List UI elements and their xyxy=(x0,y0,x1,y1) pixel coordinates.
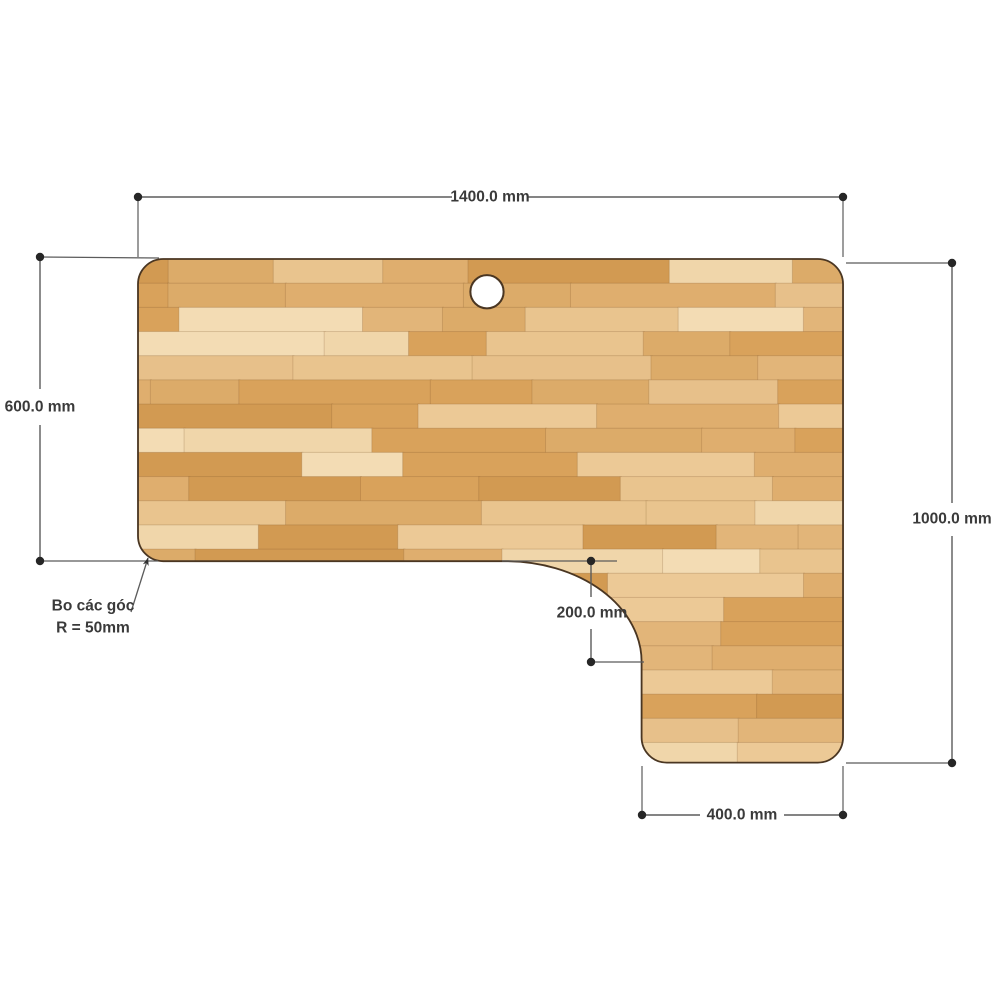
wood-plank xyxy=(795,428,976,453)
wood-plank xyxy=(716,525,799,550)
dimension-top-width: 1400.0 mm xyxy=(134,189,847,258)
wood-plank xyxy=(738,718,934,743)
dim-endpoint-dot xyxy=(948,759,956,767)
wood-plank xyxy=(329,597,534,622)
wood-plank xyxy=(651,356,759,381)
wood-plank xyxy=(532,380,650,405)
wood-plank xyxy=(760,549,966,574)
wood-plank xyxy=(730,332,940,357)
wood-plank xyxy=(363,742,501,767)
wood-plank xyxy=(400,718,538,743)
wood-plank xyxy=(286,501,483,526)
wood-plank xyxy=(643,332,730,357)
wood-plank xyxy=(277,622,407,647)
dimension-left-height: 600.0 mm xyxy=(5,253,159,565)
wood-plank xyxy=(418,404,597,429)
wood-plank xyxy=(430,380,533,405)
wood-plank xyxy=(274,670,376,695)
wood-plank xyxy=(150,380,239,405)
wood-plank xyxy=(332,404,419,429)
wood-plank xyxy=(308,573,507,598)
wood-plank xyxy=(583,525,717,550)
wood-plank xyxy=(168,283,286,308)
wood-plank xyxy=(129,404,332,429)
wood-plank xyxy=(442,307,526,332)
dim-endpoint-dot xyxy=(587,658,595,666)
wood-plank xyxy=(803,307,955,332)
dim-top-width-label: 1400.0 mm xyxy=(450,189,529,206)
wood-plank xyxy=(112,525,259,550)
wood-plank xyxy=(401,694,598,719)
wood-plank xyxy=(406,622,622,647)
dim-endpoint-dot xyxy=(839,811,847,819)
dimension-right-height: 1000.0 mm xyxy=(846,259,992,767)
dim-endpoint-dot xyxy=(587,557,595,565)
wood-plank xyxy=(525,307,679,332)
dim-endpoint-dot xyxy=(839,193,847,201)
dim-bottom-width-label: 400.0 mm xyxy=(707,807,778,824)
wood-plank xyxy=(546,428,703,453)
wood-plank xyxy=(137,597,329,622)
wood-plank xyxy=(778,380,858,405)
wood-plank xyxy=(285,283,464,308)
wood-plank xyxy=(0,283,169,308)
dim-right-height-label: 1000.0 mm xyxy=(912,511,991,528)
wood-plank xyxy=(649,380,779,405)
wood-plank xyxy=(754,452,912,477)
wood-plank xyxy=(804,573,970,598)
wood-plank xyxy=(129,356,294,381)
wood-plank xyxy=(179,307,364,332)
wood-plank xyxy=(409,332,488,357)
wood-plank xyxy=(258,525,398,550)
dim-endpoint-dot xyxy=(36,253,44,261)
wood-plank xyxy=(319,718,401,743)
wood-plank xyxy=(772,670,922,695)
wood-plank xyxy=(39,307,180,332)
wood-plank xyxy=(479,477,622,502)
wood-plank xyxy=(375,670,564,695)
wood-plank xyxy=(663,549,761,574)
wood-plank xyxy=(230,646,435,671)
extension-line xyxy=(40,257,159,258)
wood-plank xyxy=(168,259,274,284)
wood-plank xyxy=(372,428,547,453)
wood-plank xyxy=(607,573,804,598)
dim-endpoint-dot xyxy=(36,557,44,565)
wood-plank xyxy=(597,404,780,429)
wood-plank xyxy=(293,356,473,381)
wood-plank xyxy=(755,501,918,526)
wood-texture xyxy=(0,259,976,767)
wood-plank xyxy=(18,428,185,453)
wood-plank xyxy=(724,597,870,622)
wood-plank xyxy=(124,332,325,357)
wood-plank xyxy=(798,525,959,550)
corner-note-line1: Bo các góc xyxy=(52,598,135,615)
wood-plank xyxy=(16,646,141,671)
wood-plank xyxy=(486,332,644,357)
drawing-canvas: 1400.0 mm 600.0 mm 1000.0 mm xyxy=(0,0,1000,1000)
wood-plank xyxy=(273,259,383,284)
wood-plank xyxy=(363,307,444,332)
dim-left-height-label: 600.0 mm xyxy=(5,399,76,416)
wood-plank xyxy=(139,646,230,671)
wood-plank xyxy=(324,332,409,357)
wood-plank xyxy=(757,694,921,719)
desk-top xyxy=(0,259,976,767)
dimension-bottom-width: 400.0 mm xyxy=(638,766,847,824)
wood-plank xyxy=(11,477,190,502)
wood-plank xyxy=(646,501,756,526)
wood-plank xyxy=(570,283,776,308)
wood-plank xyxy=(212,694,402,719)
wood-plank xyxy=(772,477,892,502)
wood-plank xyxy=(500,742,630,767)
wood-plank xyxy=(184,428,373,453)
wood-plank xyxy=(434,646,589,671)
wood-plank xyxy=(67,694,213,719)
wood-plank xyxy=(383,259,469,284)
wood-plank xyxy=(563,670,773,695)
wood-plank xyxy=(398,525,584,550)
wood-plank xyxy=(577,452,755,477)
wood-plank xyxy=(620,477,773,502)
wood-plank xyxy=(779,404,874,429)
wood-plank xyxy=(302,452,404,477)
grommet-hole xyxy=(470,275,503,308)
corner-radius-note: Bo các góc R = 50mm xyxy=(52,558,148,637)
wood-plank xyxy=(122,573,309,598)
dim-endpoint-dot xyxy=(134,193,142,201)
dim-endpoint-dot xyxy=(638,811,646,819)
wood-plank xyxy=(472,356,652,381)
wood-plank xyxy=(712,646,888,671)
wood-plank xyxy=(702,428,796,453)
wood-plank xyxy=(99,670,275,695)
wood-plank xyxy=(216,742,364,767)
wood-plank xyxy=(588,646,713,671)
wood-plank xyxy=(153,622,278,647)
wood-plank xyxy=(597,694,758,719)
wood-plank xyxy=(127,718,320,743)
wood-plank xyxy=(89,259,170,284)
dim-notch-height-label: 200.0 mm xyxy=(557,605,628,622)
wood-plank xyxy=(481,501,647,526)
wood-plank xyxy=(129,452,303,477)
wood-plank xyxy=(360,477,479,502)
wood-plank xyxy=(47,452,130,477)
wood-plank xyxy=(115,742,217,767)
dim-endpoint-dot xyxy=(948,259,956,267)
corner-note-line2: R = 50mm xyxy=(56,620,130,637)
wood-plank xyxy=(669,259,793,284)
wood-plank xyxy=(403,452,579,477)
wood-plank xyxy=(678,307,804,332)
wood-plank xyxy=(189,477,362,502)
technical-drawing: 1400.0 mm 600.0 mm 1000.0 mm xyxy=(0,0,1000,1000)
wood-plank xyxy=(239,380,432,405)
wood-plank xyxy=(758,356,936,381)
wood-plank xyxy=(538,718,740,743)
